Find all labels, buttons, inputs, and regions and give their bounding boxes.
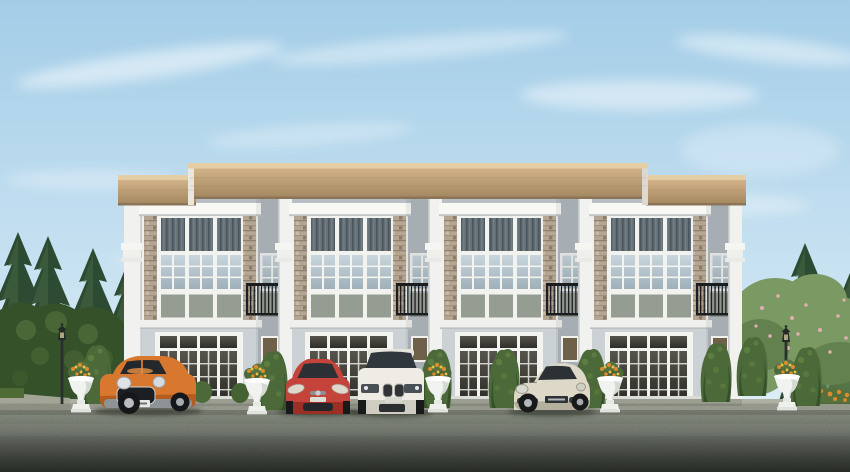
emblem: [315, 390, 320, 395]
headlight-lens: [364, 386, 368, 390]
pilaster-capital: [121, 243, 143, 250]
cloud: [680, 124, 840, 176]
wheel-rim: [176, 398, 184, 406]
wheel: [416, 400, 424, 414]
kidney-grille: [395, 384, 405, 397]
plate-text: [548, 399, 565, 401]
headlight: [361, 384, 379, 393]
kidney-grille: [383, 384, 393, 397]
headlight: [577, 383, 586, 391]
headlight: [117, 377, 131, 389]
wheel: [343, 401, 350, 414]
license-plate: [385, 397, 402, 403]
headlight-lens: [415, 386, 419, 390]
roof-lip: [118, 203, 196, 206]
lower-intake: [379, 404, 405, 412]
wheel: [286, 401, 293, 414]
grass-strip: [0, 388, 24, 398]
roof-lip: [646, 203, 746, 206]
headlight: [404, 384, 422, 393]
roof-lip: [188, 197, 648, 200]
hood-highlight: [127, 368, 153, 374]
roof-step: [642, 169, 648, 206]
roof-soffit: [188, 169, 648, 199]
headlight: [516, 385, 528, 394]
roof-soffit: [118, 180, 196, 205]
roof-step: [188, 169, 194, 206]
wheel: [358, 400, 366, 414]
headlight: [153, 377, 165, 388]
scene-canvas: [0, 0, 850, 472]
roof-soffit: [646, 180, 746, 205]
license-plate: [310, 397, 326, 402]
wheel-rim: [577, 399, 584, 406]
foreground-vignette: [0, 430, 850, 472]
wheel-rim: [124, 398, 134, 408]
pilaster-capital: [121, 258, 143, 262]
architectural-rendering: [0, 0, 850, 472]
cloud: [520, 80, 760, 110]
wheel-rim: [524, 399, 532, 407]
lower-intake: [303, 403, 333, 411]
